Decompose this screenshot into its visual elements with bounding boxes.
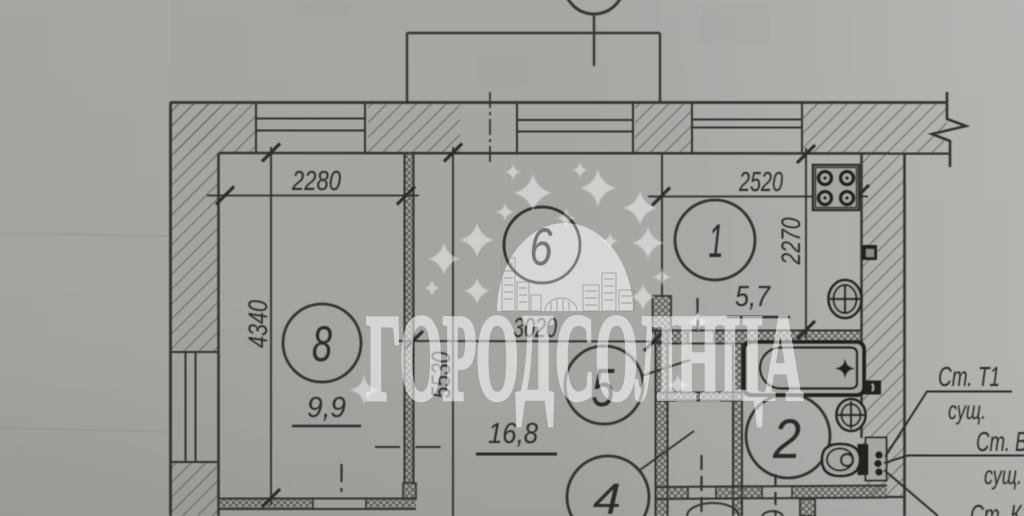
svg-text:4: 4	[593, 475, 621, 516]
svg-text:СОЛНЦА: СОЛНЦА	[555, 290, 803, 426]
svg-text:Ст. Т1: Ст. Т1	[938, 361, 1000, 392]
svg-text:6: 6	[530, 218, 553, 277]
svg-text:ГОРОД: ГОРОД	[366, 290, 554, 426]
svg-text:2520: 2520	[738, 166, 783, 197]
svg-text:8: 8	[312, 316, 332, 372]
svg-text:Ст. К1: Ст. К1	[970, 499, 1024, 516]
svg-text:4340: 4340	[243, 300, 273, 348]
svg-text:Ст. В1: Ст. В1	[976, 426, 1024, 457]
svg-text:2280: 2280	[291, 165, 341, 196]
svg-text:сущ.: сущ.	[984, 460, 1022, 490]
svg-text:сущ.: сущ.	[948, 395, 986, 425]
svg-text:1: 1	[709, 214, 724, 267]
svg-text:2270: 2270	[776, 218, 806, 266]
svg-text:9,9: 9,9	[307, 392, 346, 424]
